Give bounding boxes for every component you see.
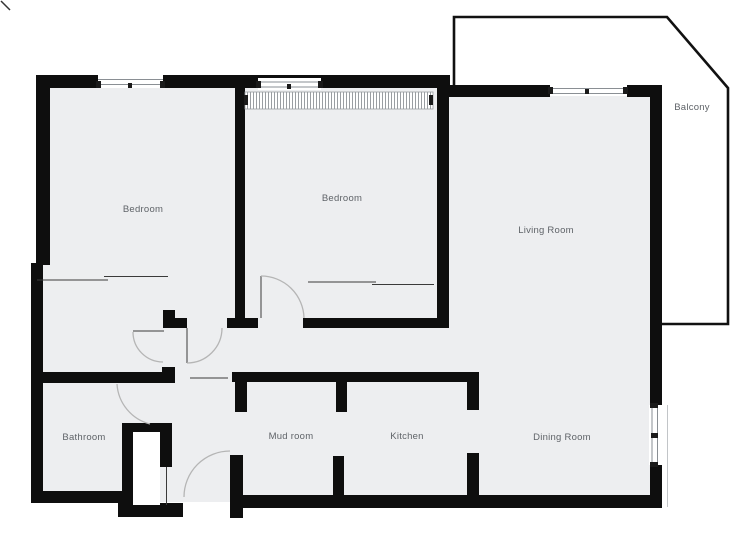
- bedroom-2-label: Bedroom: [322, 193, 362, 204]
- window-bedroom-1: [96, 75, 165, 88]
- floor-plan-drawing: Bedroom Bedroom Living Room Balcony Bath…: [0, 0, 750, 545]
- bathroom-label: Bathroom: [62, 432, 105, 443]
- kitchen-label: Kitchen: [390, 431, 423, 442]
- duct-shaft: [133, 432, 160, 505]
- window-living-room: [548, 85, 628, 96]
- dining-room-label: Dining Room: [533, 432, 591, 443]
- bedroom-1-label: Bedroom: [123, 204, 163, 215]
- living-room-label: Living Room: [518, 225, 574, 236]
- floor-plan-canvas: Bedroom Bedroom Living Room Balcony Bath…: [0, 0, 750, 545]
- mud-room-label: Mud room: [269, 431, 314, 442]
- compass-tick-icon: [1, 1, 10, 10]
- balcony-label: Balcony: [674, 102, 710, 113]
- window-sill-hatch: [244, 92, 433, 109]
- window-bedroom-2: [256, 78, 323, 90]
